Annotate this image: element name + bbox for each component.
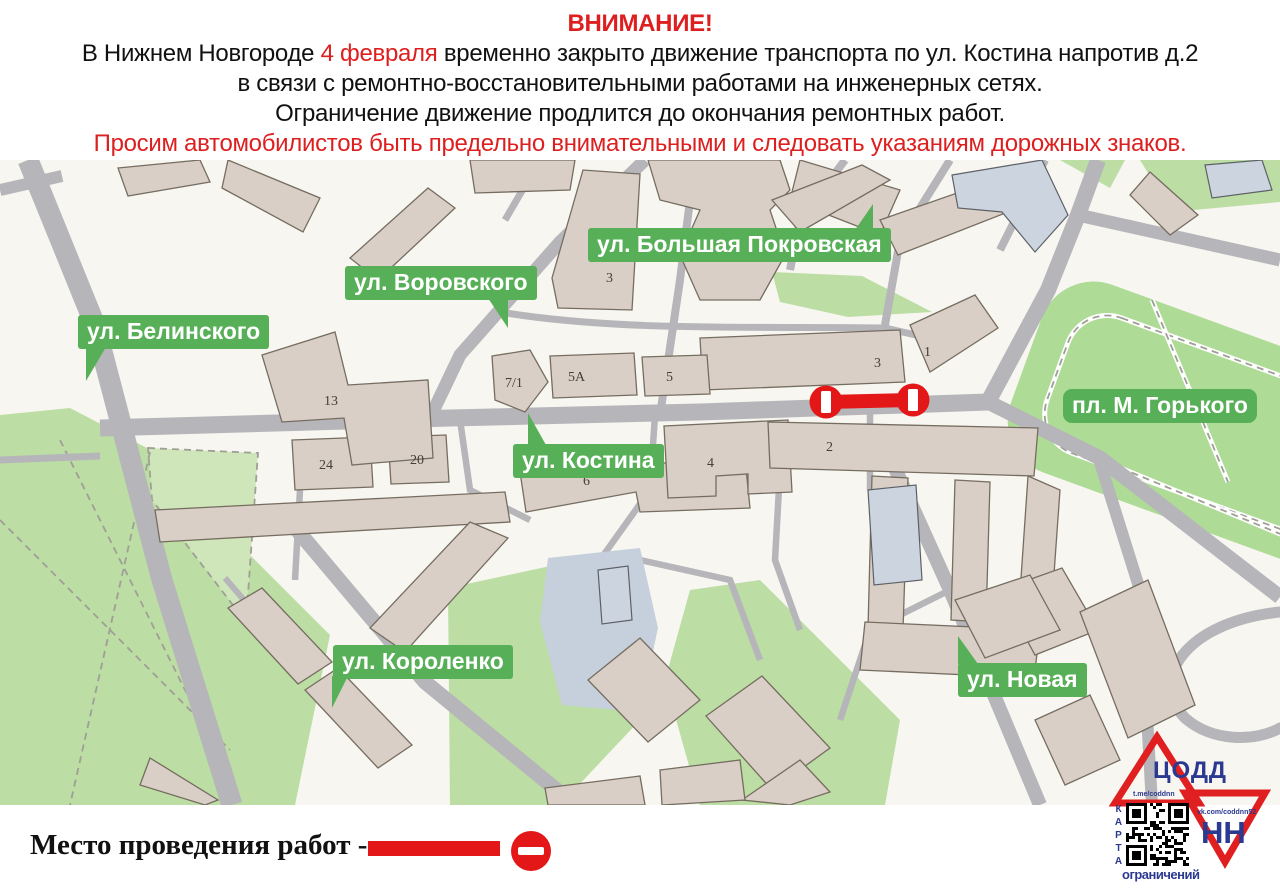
building-number: 2 bbox=[826, 440, 833, 455]
logo-region-name: НН bbox=[1201, 815, 1246, 851]
street-label-kostina: ул. Костина bbox=[513, 444, 664, 478]
announcement-line-2: в связи с ремонтно-восстановительными ра… bbox=[0, 69, 1280, 99]
building-number: 4 bbox=[707, 456, 714, 471]
label-pointer-icon bbox=[332, 676, 348, 708]
street-label-novaya: ул. Новая bbox=[958, 663, 1087, 697]
building-number: 3 bbox=[606, 271, 613, 286]
logo-karta-text: КАРТА bbox=[1113, 804, 1124, 869]
street-label-pokrovskaya: ул. Большая Покровская bbox=[588, 228, 891, 262]
building-number: 1 bbox=[924, 345, 931, 360]
building-number: 24 bbox=[319, 458, 333, 473]
label-pointer-icon bbox=[958, 636, 978, 664]
closure-date: 4 февраля bbox=[321, 40, 438, 67]
announcement-header: ВНИМАНИЕ! В Нижнем Новгороде 4 февраля в… bbox=[0, 0, 1280, 160]
street-label-korolenko: ул. Короленко bbox=[333, 645, 513, 679]
square-label-gorkogo: пл. М. Горького bbox=[1063, 389, 1257, 423]
announcement-line-3: Ограничение движение продлится до оконча… bbox=[0, 99, 1280, 129]
announcement-line-4: Просим автомобилистов быть предельно вни… bbox=[0, 129, 1280, 159]
announcement-line-1: В Нижнем Новгороде 4 февраля временно за… bbox=[0, 39, 1280, 69]
logo-org-name: ЦОДД bbox=[1150, 757, 1230, 785]
legend-bar: Место проведения работ - bbox=[0, 805, 1280, 888]
no-entry-sign-icon bbox=[511, 831, 551, 871]
building-number: 20 bbox=[410, 453, 424, 468]
building-number: 5 bbox=[666, 370, 673, 385]
label-pointer-icon bbox=[86, 347, 106, 381]
city-map: 13 7/1 5А 5 3 3 1 2 24 20 6 4 ул. Белинс… bbox=[0, 160, 1280, 805]
logo-telegram-link: t.me/coddnn bbox=[1133, 791, 1175, 798]
building-number: 3 bbox=[874, 356, 881, 371]
label-pointer-icon bbox=[855, 204, 873, 230]
label-pointer-icon bbox=[488, 298, 508, 328]
logo-ogranicheniy-text: ограничений bbox=[1122, 867, 1199, 882]
street-label-vorovskogo: ул. Воровского bbox=[345, 266, 537, 300]
street-label-belinskogo: ул. Белинского bbox=[78, 315, 269, 349]
label-pointer-icon bbox=[528, 413, 546, 445]
qr-code bbox=[1126, 803, 1189, 866]
codd-nn-logo: ЦОДД t.me/coddnn vk.com/coddnn52 КАРТА Н… bbox=[1093, 731, 1280, 888]
attention-title: ВНИМАНИЕ! bbox=[0, 9, 1280, 39]
closure-bar-sample bbox=[368, 841, 500, 856]
building-number: 13 bbox=[324, 394, 338, 409]
legend-worksite-label: Место проведения работ - bbox=[30, 829, 367, 862]
building-number: 7/1 bbox=[505, 376, 523, 391]
building-number: 5А bbox=[568, 370, 586, 385]
